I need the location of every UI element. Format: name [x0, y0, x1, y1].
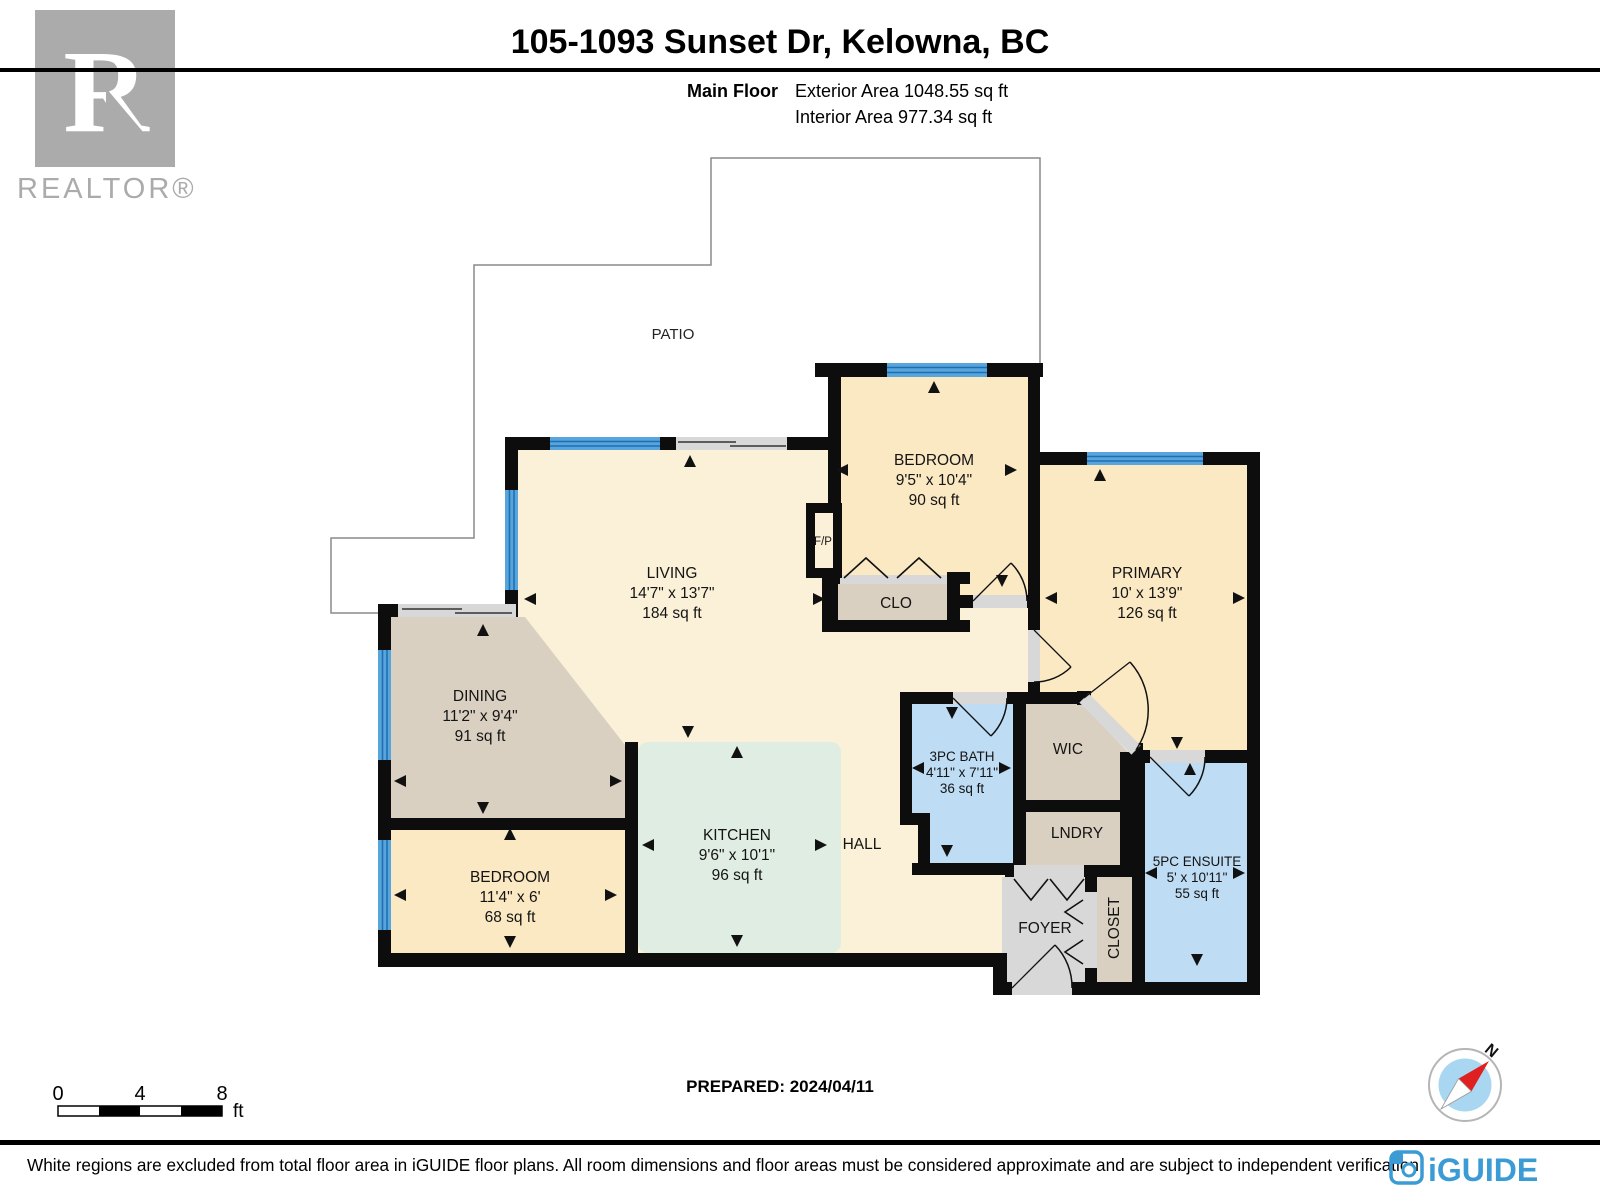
iguide-wordmark: iGUIDE: [1428, 1152, 1538, 1188]
scale-bar-segment: [99, 1106, 140, 1116]
sliding-door: [398, 604, 516, 617]
sliding-door: [676, 437, 787, 450]
bedroom1-door-opening: [973, 595, 1027, 608]
bath-door-opening: [953, 692, 1007, 704]
fireplace: F/P: [806, 503, 842, 578]
svg-text:91 sq ft: 91 sq ft: [455, 728, 507, 745]
prepared-date: PREPARED: 2024/04/11: [686, 1077, 874, 1096]
floor-plan-page: R REALTOR® 105-1093 Sunset Dr, Kelowna, …: [0, 0, 1600, 1200]
svg-text:10' x 13'9": 10' x 13'9": [1112, 585, 1183, 602]
iguide-logo-tab: [1391, 1152, 1403, 1164]
svg-text:11'4" x 6': 11'4" x 6': [479, 889, 540, 906]
svg-text:4'11" x 7'11": 4'11" x 7'11": [926, 765, 998, 780]
svg-text:KITCHEN: KITCHEN: [703, 827, 771, 844]
patio-label: PATIO: [652, 326, 695, 343]
window: [505, 490, 518, 590]
entry-door-opening: [1012, 982, 1072, 995]
page-title: 105-1093 Sunset Dr, Kelowna, BC: [511, 23, 1050, 61]
svg-text:9'6" x 10'1": 9'6" x 10'1": [699, 847, 775, 864]
floor-label: Main Floor: [687, 81, 778, 101]
svg-text:BEDROOM: BEDROOM: [470, 869, 550, 886]
svg-text:3PC BATH: 3PC BATH: [929, 749, 994, 764]
window: [1087, 452, 1203, 465]
svg-text:36 sq ft: 36 sq ft: [940, 781, 985, 796]
lndry-bifold-opening: [1014, 865, 1084, 877]
scale-tick-4: 4: [134, 1083, 145, 1105]
lndry-label: LNDRY: [1051, 825, 1103, 842]
footer-divider: [0, 1140, 1600, 1145]
closet-bifold-opening: [1085, 892, 1097, 968]
svg-text:DINING: DINING: [453, 688, 507, 705]
header-divider: [0, 68, 1600, 72]
svg-text:11'2" x 9'4": 11'2" x 9'4": [442, 708, 517, 725]
footer-disclaimer: White regions are excluded from total fl…: [27, 1155, 1424, 1175]
scale-tick-8: 8: [216, 1083, 227, 1105]
ensuite-door-opening: [1150, 750, 1205, 763]
svg-text:68 sq ft: 68 sq ft: [485, 909, 537, 926]
svg-text:90 sq ft: 90 sq ft: [909, 492, 961, 509]
window: [550, 437, 660, 450]
svg-text:LIVING: LIVING: [647, 565, 698, 582]
realtor-logo: R REALTOR®: [17, 10, 197, 205]
clo-bifold-opening: [840, 575, 947, 584]
svg-text:55 sq ft: 55 sq ft: [1175, 886, 1220, 901]
svg-text:5PC ENSUITE: 5PC ENSUITE: [1153, 854, 1242, 869]
svg-text:96 sq ft: 96 sq ft: [712, 867, 764, 884]
compass-icon: N: [1429, 1041, 1501, 1121]
fireplace-label: F/P: [814, 536, 832, 548]
header: R REALTOR® 105-1093 Sunset Dr, Kelowna, …: [0, 10, 1600, 205]
svg-text:BEDROOM: BEDROOM: [894, 452, 974, 469]
room-primary-label: PRIMARY 10' x 13'9" 126 sq ft: [1112, 565, 1183, 622]
window: [378, 840, 391, 930]
window: [887, 363, 987, 377]
svg-text:184 sq ft: 184 sq ft: [642, 605, 702, 622]
clo-label: CLO: [880, 595, 912, 612]
scale-bar-segment: [181, 1106, 222, 1116]
scale-tick-0: 0: [52, 1083, 63, 1105]
realtor-wordmark: REALTOR®: [17, 173, 197, 205]
svg-text:126 sq ft: 126 sq ft: [1117, 605, 1177, 622]
svg-text:9'5" x 10'4": 9'5" x 10'4": [896, 472, 972, 489]
scale-unit: ft: [233, 1101, 244, 1122]
iguide-logo-lens: [1403, 1164, 1415, 1176]
wic-label: WIC: [1053, 741, 1083, 758]
svg-text:PRIMARY: PRIMARY: [1112, 565, 1182, 582]
hall-label: HALL: [843, 836, 882, 853]
foyer-label: FOYER: [1018, 920, 1071, 937]
svg-text:14'7" x 13'7": 14'7" x 13'7": [629, 585, 714, 602]
interior-area: Interior Area 977.34 sq ft: [795, 107, 992, 127]
closet-label: CLOSET: [1106, 896, 1123, 959]
window: [378, 650, 391, 760]
exterior-area: Exterior Area 1048.55 sq ft: [795, 81, 1008, 101]
svg-text:5' x 10'11": 5' x 10'11": [1167, 870, 1228, 885]
scale-bar: 0 4 8 ft: [52, 1083, 244, 1122]
primary-door-opening: [1028, 630, 1040, 682]
